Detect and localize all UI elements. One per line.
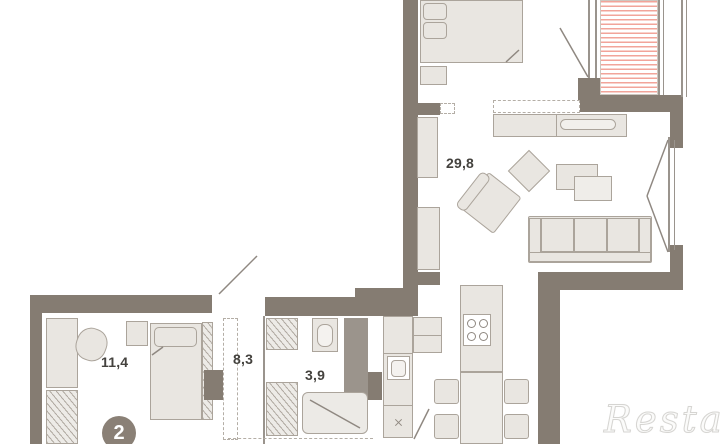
bath-sink: [312, 318, 338, 352]
wardrobe-column: [417, 207, 440, 270]
living-area-label: 29,8: [446, 155, 474, 171]
sofa-cushion: [574, 218, 607, 252]
burner: [479, 319, 488, 328]
cooktop: [463, 314, 491, 346]
bath-sink-bowl: [317, 324, 333, 347]
kitchen-counter-top: [413, 317, 442, 353]
sofa-cushion: [541, 218, 574, 252]
washbasin-cabinet: [266, 382, 298, 436]
glazing-line: [658, 0, 660, 95]
pillow: [423, 3, 447, 20]
balcony-warm-zone: [600, 0, 658, 95]
window-frame-right: [668, 137, 670, 252]
kitchen-counter: [383, 316, 413, 438]
pillow: [154, 327, 197, 347]
wall-bedroom-hall-block2: [204, 370, 223, 400]
dining-chair: [434, 414, 459, 439]
balcony-door-frame: [588, 0, 590, 78]
burner: [479, 332, 488, 341]
glazing-line: [663, 0, 664, 95]
sofa-cushion: [607, 218, 639, 252]
glazing-line: [686, 0, 687, 97]
burner: [467, 319, 476, 328]
sideboard-divider: [556, 115, 557, 136]
nightstand: [126, 321, 148, 346]
ottoman: [508, 150, 550, 192]
appliance-mark: [394, 418, 403, 427]
wardrobe-column: [417, 117, 438, 178]
wall-right-upper: [670, 97, 683, 148]
sofa-armrest: [529, 218, 541, 254]
wall-bath-right-block: [368, 372, 382, 400]
armchair-back: [455, 171, 492, 213]
hall-area-label: 8,3: [233, 351, 253, 367]
wall-stub-top: [413, 103, 440, 115]
floor-plan: 29,8 11,4 2 8,3: [0, 0, 725, 444]
bathroom-area-label: 3,9: [305, 367, 325, 383]
sideboard-tv-stand: [493, 114, 627, 137]
wall-bath-top: [265, 297, 418, 316]
desk: [46, 318, 78, 388]
pillow: [423, 22, 447, 39]
sofa-backrest: [529, 252, 651, 262]
wall-wing-left: [30, 295, 42, 444]
counter-divider: [384, 405, 412, 406]
wall-living-bottom: [538, 272, 683, 290]
wall-wing-top: [30, 295, 212, 313]
wall-top-right: [578, 95, 683, 112]
bathtub: [302, 392, 368, 434]
bath-cabinet: [266, 318, 298, 350]
wardrobe-hatched: [46, 390, 78, 444]
wall-living-left: [403, 0, 418, 316]
zone-partition-dashed: [493, 100, 580, 113]
window-leaf-upper: [647, 140, 668, 196]
sideboard-handle: [560, 119, 616, 130]
wall-balcony-jamb: [578, 78, 600, 95]
kitchen-sink: [387, 356, 410, 380]
dining-chair: [434, 379, 459, 404]
wall-opening-dashed: [440, 103, 455, 114]
counter-divider: [384, 353, 412, 354]
kitchen-island: [460, 285, 503, 372]
kitchen-door-leaf: [414, 409, 429, 439]
partition-bathroom: [263, 316, 265, 444]
wall-stub-bottom: [413, 272, 440, 285]
nightstand: [420, 66, 447, 85]
bedroom-area-label: 11,4: [101, 354, 128, 370]
dining-chair: [504, 379, 529, 404]
wall-dining-right: [538, 290, 560, 444]
sofa-armrest: [639, 218, 651, 254]
glazing-line: [681, 0, 683, 97]
watermark: Restate: [604, 398, 725, 441]
balcony-door-frame: [595, 0, 597, 78]
armchair: [460, 172, 521, 234]
dining-chair: [504, 414, 529, 439]
room-count-badge: 2: [102, 416, 136, 444]
balcony-door-leaf: [560, 28, 588, 77]
counter-divider: [414, 335, 441, 336]
wardrobe-dashed: [223, 318, 238, 440]
plan-cut-line: [228, 438, 373, 439]
window-frame-right: [674, 140, 675, 250]
coffee-table: [574, 176, 612, 201]
burner: [467, 332, 476, 341]
sofa: [528, 216, 652, 263]
vent-shaft: [344, 318, 368, 398]
kitchen-sink-basin: [391, 360, 406, 377]
entrance-door-leaf: [219, 256, 257, 294]
dining-table: [460, 372, 503, 444]
